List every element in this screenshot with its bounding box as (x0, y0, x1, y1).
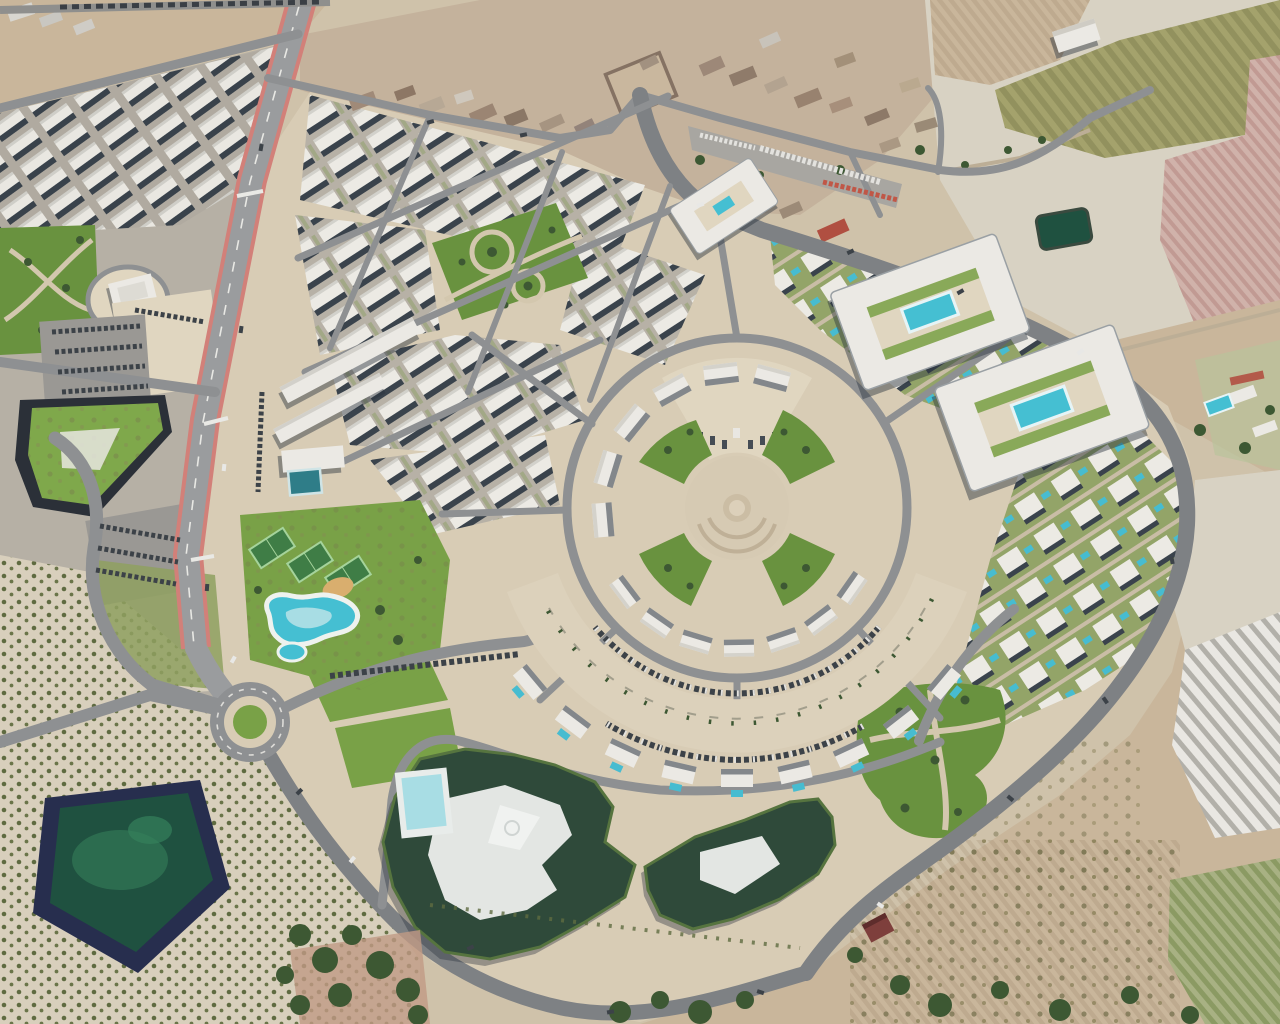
townhouse-block (295, 215, 440, 355)
clubhouse-pool (288, 469, 322, 496)
aerial-render: Aerial 3D render of a new-build resort m… (0, 0, 1280, 1024)
satellite-image: Aerial 3D render of a new-build resort m… (0, 0, 1280, 1024)
complex-pool-deck (395, 767, 454, 838)
complex-pool (401, 774, 446, 830)
kids-pool (278, 643, 306, 661)
roundabout (210, 682, 290, 762)
farm-pond (1035, 208, 1092, 251)
